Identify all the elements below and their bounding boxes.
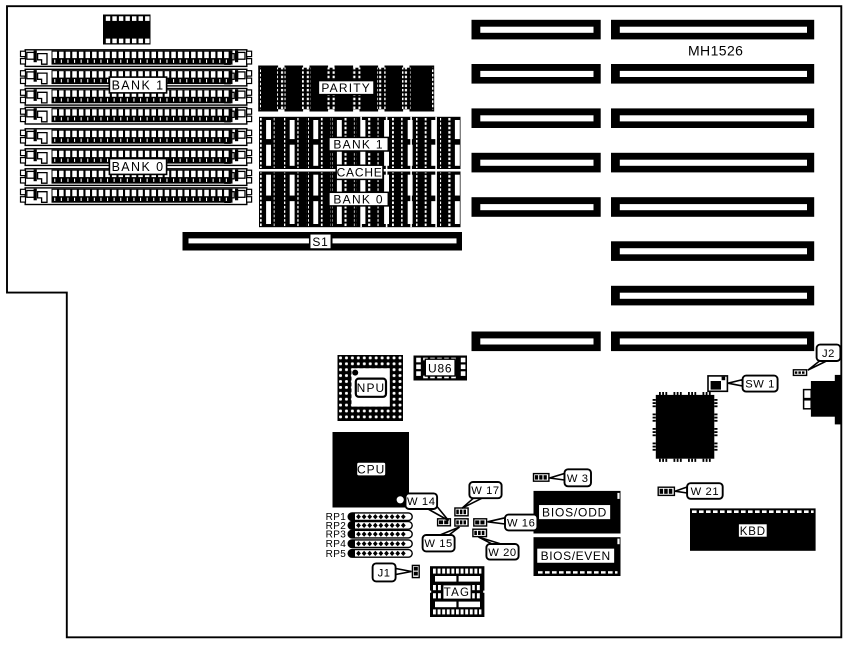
svg-text:W 16: W 16 — [507, 518, 536, 530]
svg-text:BIOS/EVEN: BIOS/EVEN — [541, 549, 611, 563]
svg-text:PARITY: PARITY — [321, 81, 371, 95]
svg-text:CACHE: CACHE — [337, 166, 383, 180]
svg-text:W 20: W 20 — [488, 547, 517, 559]
svg-text:BANK 0: BANK 0 — [112, 160, 165, 174]
svg-text:BIOS/ODD: BIOS/ODD — [542, 506, 607, 520]
svg-text:J2: J2 — [822, 348, 835, 360]
svg-text:TAG: TAG — [444, 587, 470, 599]
svg-text:W 3: W 3 — [567, 473, 589, 485]
svg-text:BANK 1: BANK 1 — [112, 79, 165, 93]
svg-text:W 17: W 17 — [471, 485, 500, 497]
svg-text:SW 1: SW 1 — [745, 379, 775, 391]
svg-text:BANK 1: BANK 1 — [333, 137, 384, 151]
svg-text:S1: S1 — [312, 235, 328, 249]
svg-text:W 14: W 14 — [407, 496, 436, 508]
svg-text:KBD: KBD — [740, 526, 766, 538]
svg-text:BANK 0: BANK 0 — [333, 192, 384, 206]
svg-text:NPU: NPU — [357, 381, 386, 395]
svg-text:W 15: W 15 — [424, 538, 453, 550]
svg-text:U86: U86 — [428, 361, 452, 375]
svg-text:RP5: RP5 — [326, 549, 347, 560]
svg-text:MH1526: MH1526 — [688, 42, 743, 58]
svg-text:CPU: CPU — [357, 462, 385, 476]
svg-text:J1: J1 — [378, 567, 391, 579]
svg-text:W 21: W 21 — [691, 486, 720, 498]
